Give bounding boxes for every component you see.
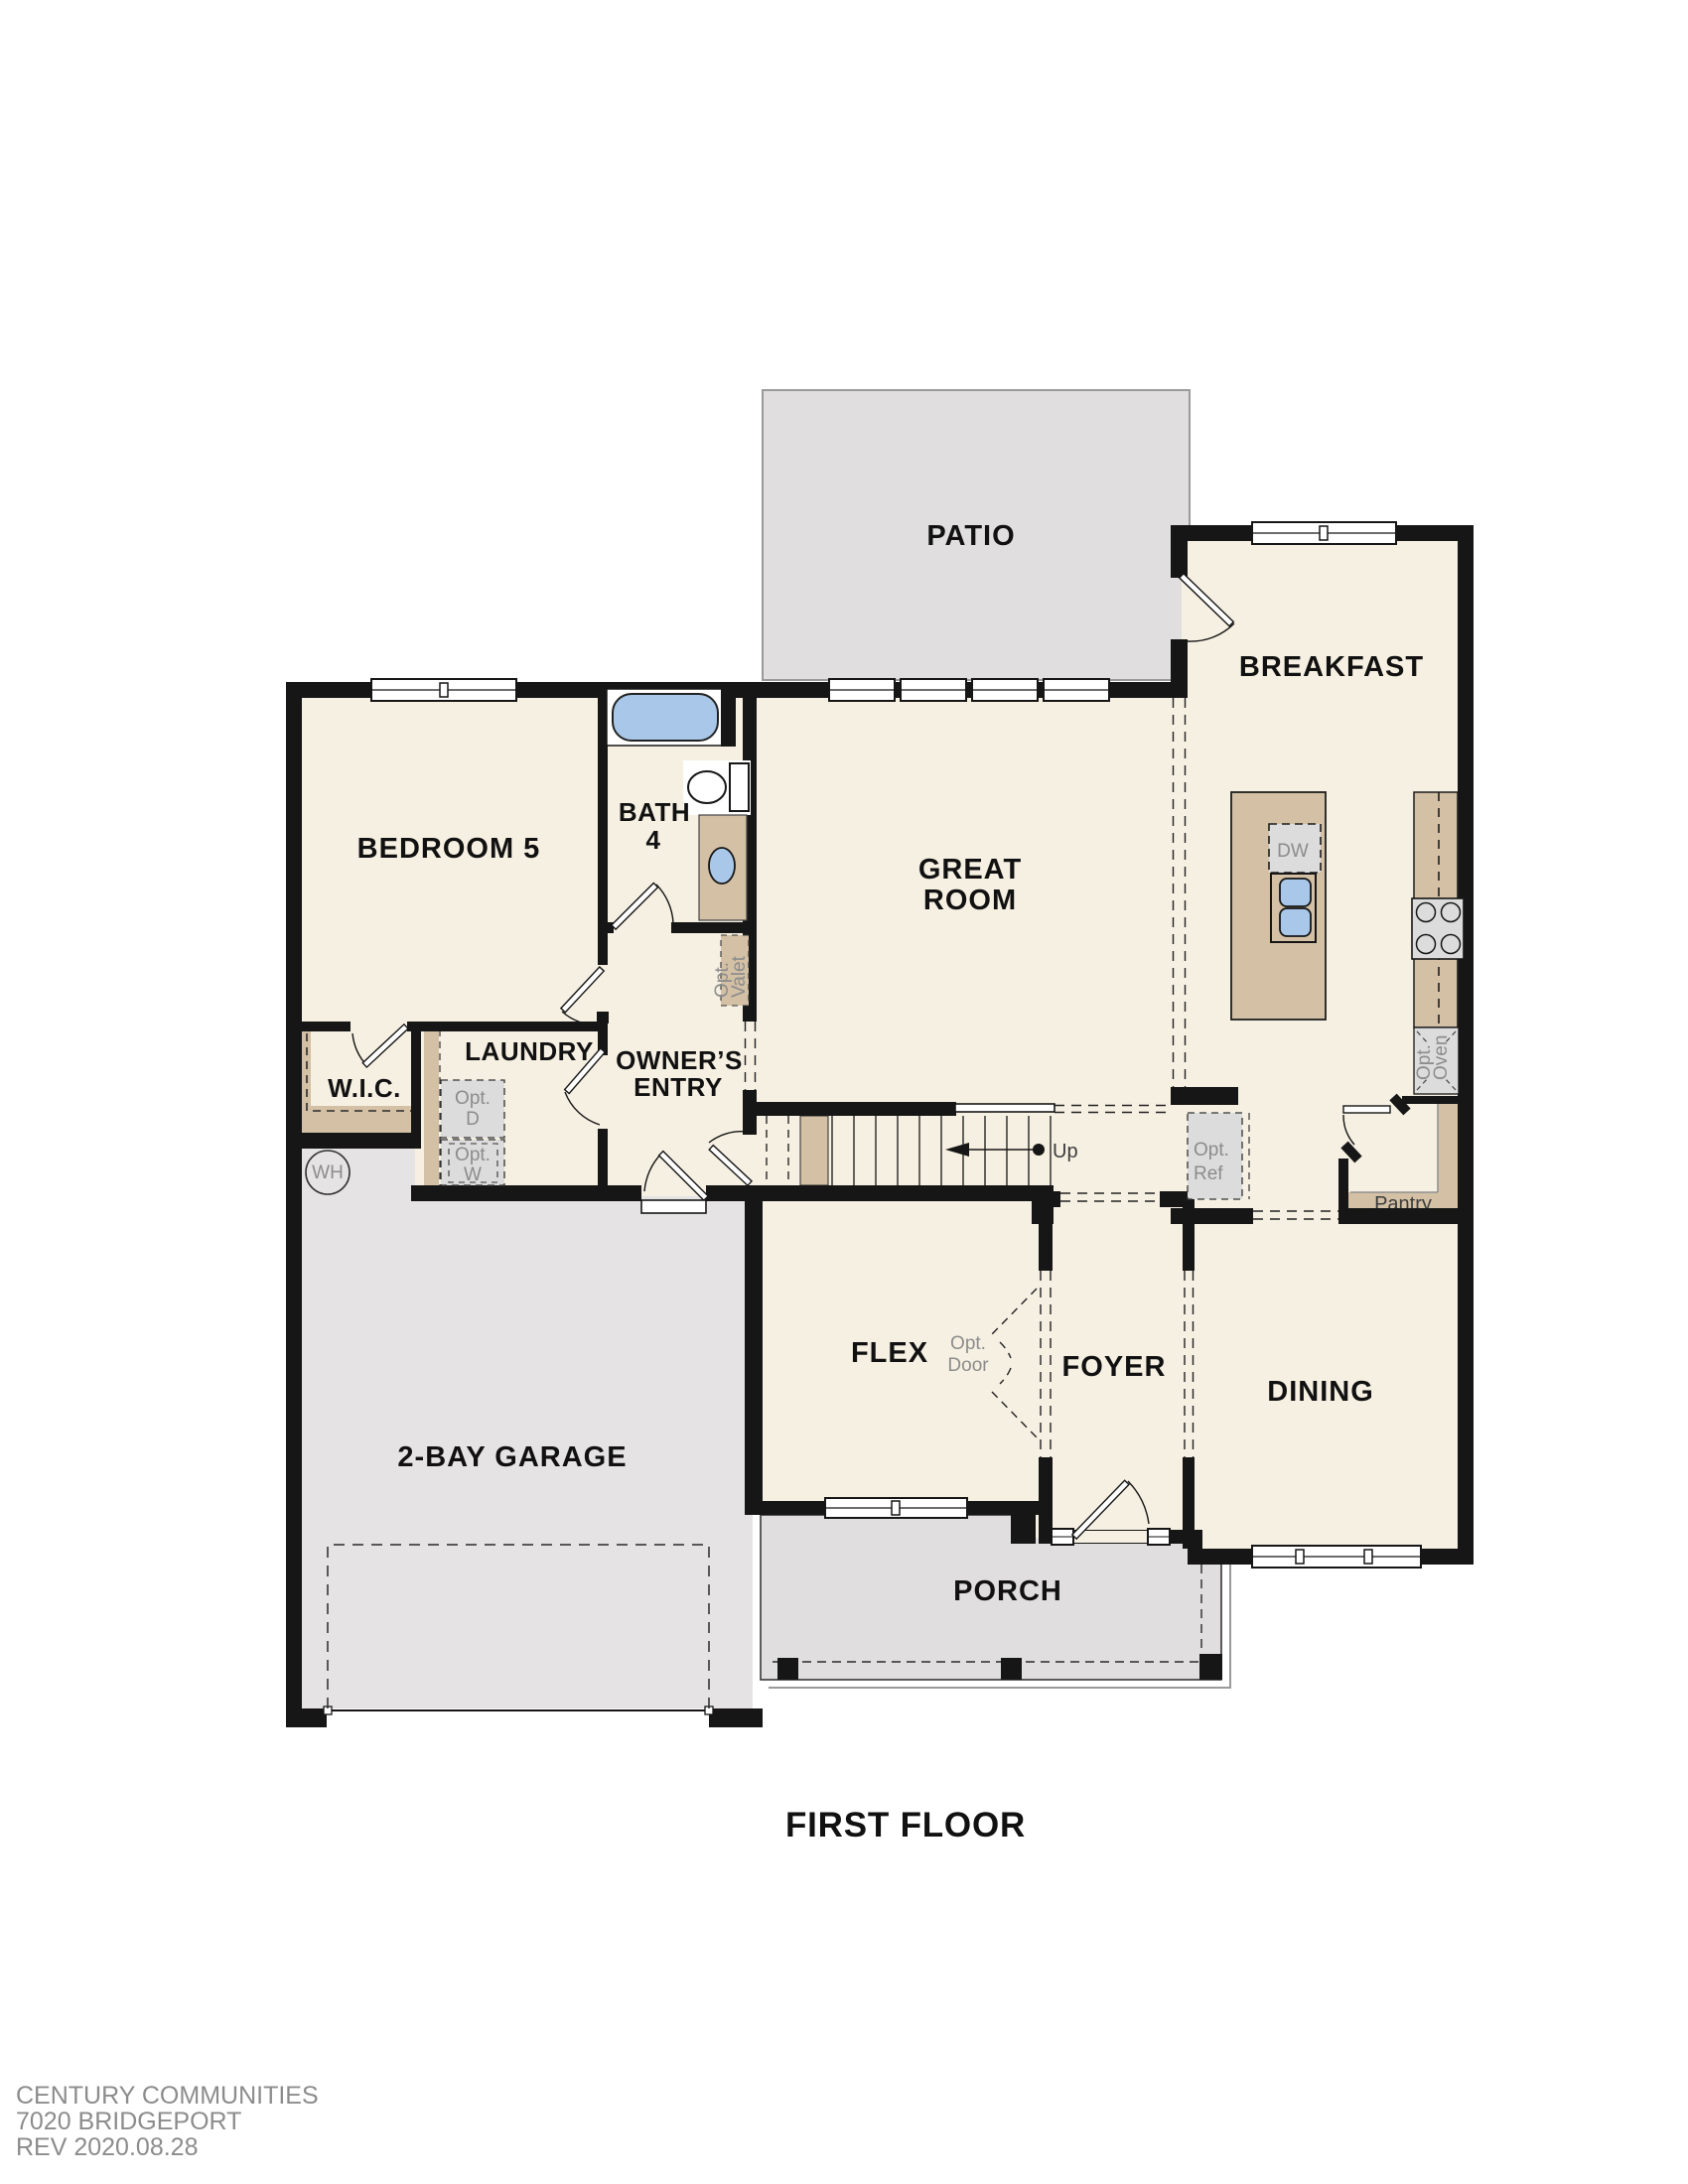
svg-text:4: 4 [646, 825, 661, 855]
svg-text:Opt.: Opt. [455, 1088, 491, 1109]
svg-text:GREAT: GREAT [918, 854, 1022, 886]
svg-text:Opt.: Opt. [1194, 1140, 1229, 1160]
svg-text:W.I.C.: W.I.C. [328, 1073, 401, 1103]
svg-text:ENTRY: ENTRY [633, 1072, 723, 1102]
svg-text:OWNER’S: OWNER’S [616, 1045, 743, 1075]
svg-text:D: D [466, 1109, 480, 1130]
svg-text:DINING: DINING [1267, 1376, 1374, 1408]
svg-text:PATIO: PATIO [926, 520, 1015, 552]
svg-text:BREAKFAST: BREAKFAST [1239, 651, 1424, 683]
svg-text:Ref: Ref [1194, 1163, 1223, 1184]
svg-text:2-BAY GARAGE: 2-BAY GARAGE [397, 1441, 627, 1473]
svg-text:REV 2020.08.28: REV 2020.08.28 [16, 2133, 198, 2161]
svg-text:Door: Door [947, 1355, 989, 1376]
svg-text:Up: Up [1053, 1141, 1078, 1162]
svg-text:LAUNDRY: LAUNDRY [465, 1036, 594, 1066]
svg-text:DW: DW [1277, 841, 1309, 862]
svg-text:W: W [464, 1164, 482, 1185]
svg-text:CENTURY COMMUNITIES: CENTURY COMMUNITIES [16, 2082, 319, 2110]
svg-text:Opt.: Opt. [950, 1333, 986, 1354]
svg-text:FIRST FLOOR: FIRST FLOOR [785, 1806, 1026, 1844]
svg-text:FOYER: FOYER [1062, 1351, 1167, 1383]
svg-text:Oven: Oven [1431, 1035, 1452, 1080]
svg-text:BATH: BATH [619, 797, 690, 827]
svg-text:7020 BRIDGEPORT: 7020 BRIDGEPORT [16, 2108, 241, 2135]
svg-text:Valet: Valet [729, 955, 750, 998]
svg-text:PORCH: PORCH [953, 1575, 1062, 1607]
svg-text:WH: WH [312, 1162, 344, 1183]
svg-text:ROOM: ROOM [923, 885, 1017, 916]
svg-text:BEDROOM 5: BEDROOM 5 [357, 833, 541, 865]
svg-text:Opt.: Opt. [455, 1145, 491, 1165]
svg-text:FLEX: FLEX [851, 1337, 928, 1369]
